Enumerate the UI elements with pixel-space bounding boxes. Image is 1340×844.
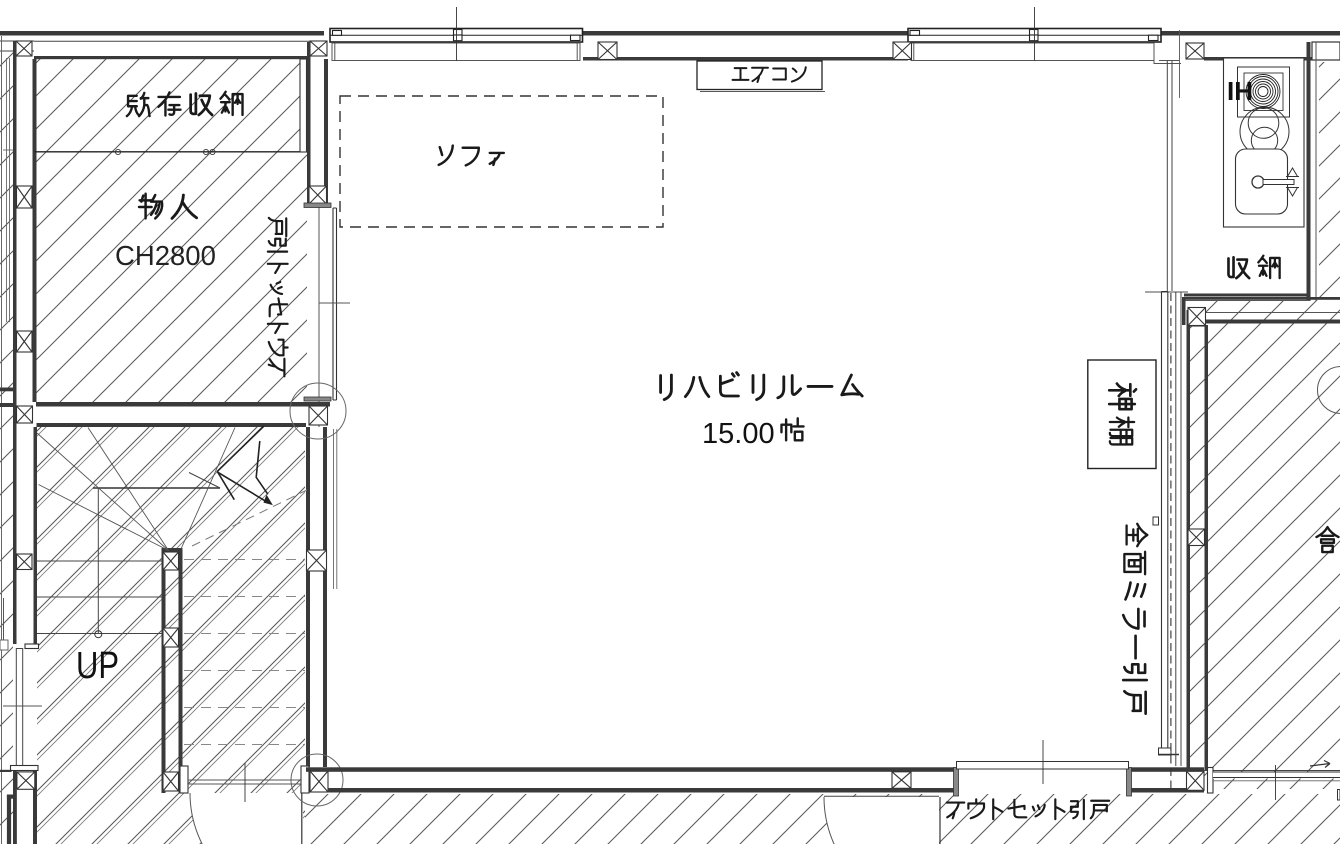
svg-text:15.00: 15.00 bbox=[702, 418, 775, 450]
svg-text:CH2800: CH2800 bbox=[115, 240, 216, 271]
svg-text:IH: IH bbox=[1227, 76, 1253, 106]
svg-text:UP: UP bbox=[76, 645, 119, 687]
